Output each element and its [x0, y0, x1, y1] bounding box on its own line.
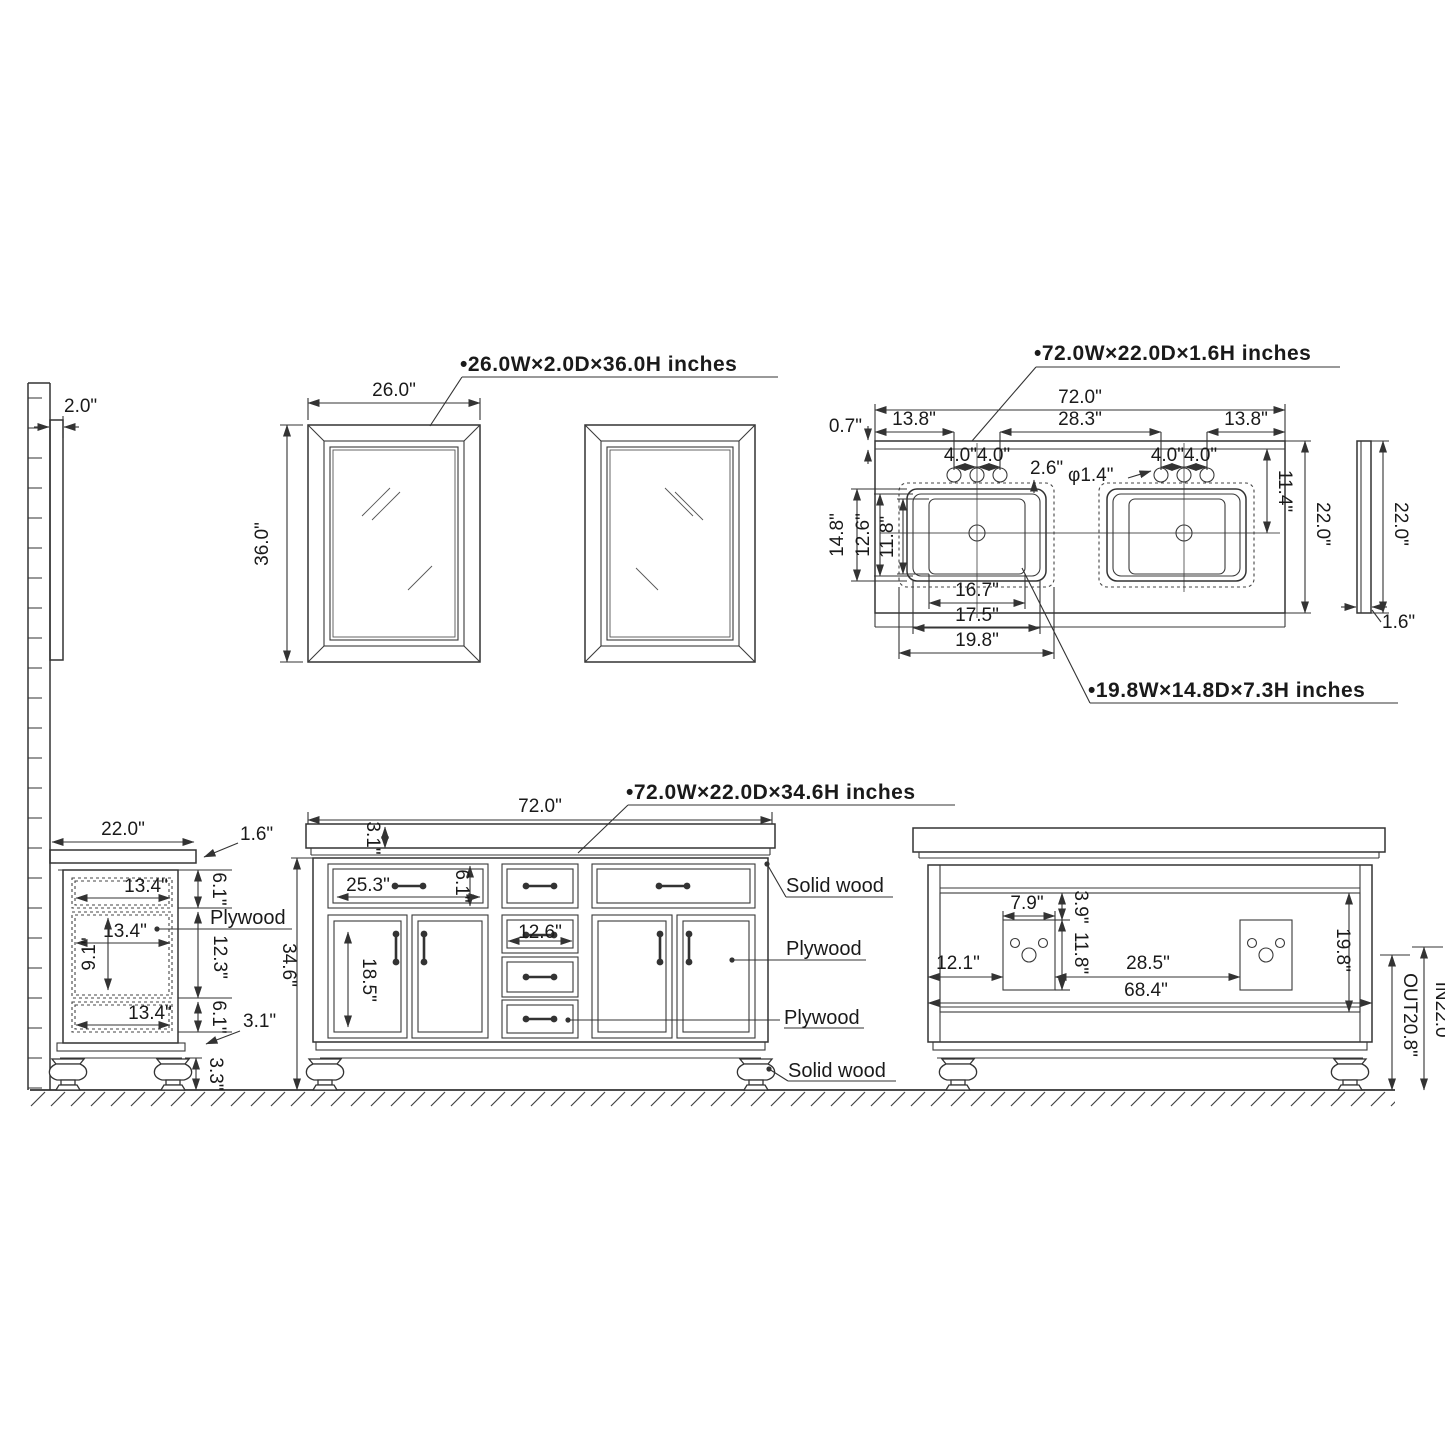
dim-left-margin: 12.1": [936, 953, 980, 974]
wall-section: [28, 383, 50, 1090]
dim-mirror-depth: 2.0": [64, 396, 97, 417]
dim-supply-in-height: IN22.0": [1431, 982, 1445, 1045]
dim-front-height: 34.6": [278, 943, 299, 987]
dim-faucet-spacing-right: 4.0"4.0": [1151, 445, 1217, 466]
dim-sink-basin-width: 16.7": [955, 580, 999, 601]
dim-sink-outer-depth: 14.8": [827, 513, 848, 557]
dim-panel-height: 19.8": [1332, 928, 1353, 972]
sink-spec-label: •19.8W×14.8D×7.3H inches: [1088, 679, 1365, 702]
dim-top-drawer-depth: 13.4": [124, 876, 168, 897]
dim-side-top-drawer-height: 6.1": [208, 872, 229, 905]
dim-sink-mid-width: 17.5": [955, 605, 999, 626]
material-leg-label: Solid wood: [788, 1060, 886, 1082]
dim-counter-depth: 22.0": [1312, 502, 1333, 546]
dim-sink-outer-width: 19.8": [955, 630, 999, 651]
dim-mid-inner-height: 9.1": [79, 937, 100, 970]
dim-counter-width: 72.0": [1058, 387, 1102, 408]
dim-bottom-depth: 13.4": [128, 1003, 172, 1024]
dim-faucet-hole-dia: φ1.4": [1068, 465, 1113, 486]
dim-faucet-spacing-left: 4.0"4.0": [944, 445, 1010, 466]
dim-counter-thickness: 1.6": [1382, 612, 1415, 633]
ground-line: [30, 1090, 1395, 1107]
material-door-label: Plywood: [786, 938, 862, 960]
dim-center-width: 12.6": [518, 922, 562, 943]
dim-side-depth: 22.0": [101, 819, 145, 840]
dim-back-offset: 0.7": [829, 416, 862, 437]
dim-edge-faucet-right: 13.8": [1224, 409, 1268, 430]
mirror-spec-label: •26.0W×2.0D×36.0H inches: [460, 353, 737, 376]
dim-drawer-width: 25.3": [346, 875, 390, 896]
vanity-technical-drawing: 2.0" 26.0": [0, 0, 1445, 1445]
dim-inner-width: 68.4": [1124, 980, 1168, 1001]
dim-faucet-to-sink: 2.6": [1030, 458, 1063, 479]
material-drawer-label: Plywood: [784, 1007, 860, 1029]
dim-counter-front-thickness: 3.1": [362, 821, 383, 854]
background: [0, 0, 1445, 1445]
dim-mirror-height: 36.0": [252, 522, 273, 566]
dim-side-counter-thickness: 1.6": [240, 824, 273, 845]
dim-front-width: 72.0": [518, 796, 562, 817]
material-top-label: Solid wood: [786, 875, 884, 897]
dim-cutout-gap: 28.5": [1126, 953, 1170, 974]
dim-mid-depth: 13.4": [103, 921, 147, 942]
dim-cutout-width: 7.9": [1010, 893, 1043, 914]
dim-side-bottom-height: 6.1": [208, 1000, 229, 1033]
dim-side-mid-height: 12.3": [209, 935, 230, 979]
dim-cutout-height: 11.8": [1070, 932, 1091, 974]
countertop-spec-label: •72.0W×22.0D×1.6H inches: [1034, 342, 1311, 365]
dim-drawer-height: 6.1": [451, 869, 472, 902]
drawing-canvas: 2.0" 26.0": [0, 0, 1445, 1445]
dim-counter-side-depth: 22.0": [1390, 502, 1411, 546]
dim-backsplash-to-sink-center: 11.4": [1274, 470, 1295, 512]
dim-edge-faucet-left: 13.8": [892, 409, 936, 430]
dim-mirror-width: 26.0": [372, 380, 416, 401]
dim-door-height: 18.5": [358, 958, 379, 1002]
dim-foot-height: 3.3": [205, 1057, 226, 1090]
vanity-spec-label: •72.0W×22.0D×34.6H inches: [626, 781, 916, 804]
dim-sink-mid-depth: 12.6": [853, 513, 874, 557]
dim-cutout-top-offset: 3.9": [1070, 890, 1091, 923]
side-material-label: Plywood: [210, 907, 286, 929]
dim-side-rail-height: 3.1": [243, 1011, 276, 1032]
dim-sink-basin-depth: 11.8": [877, 516, 898, 558]
dim-drain-out-height: OUT20.8": [1399, 973, 1420, 1057]
dim-between-faucets: 28.3": [1058, 409, 1102, 430]
